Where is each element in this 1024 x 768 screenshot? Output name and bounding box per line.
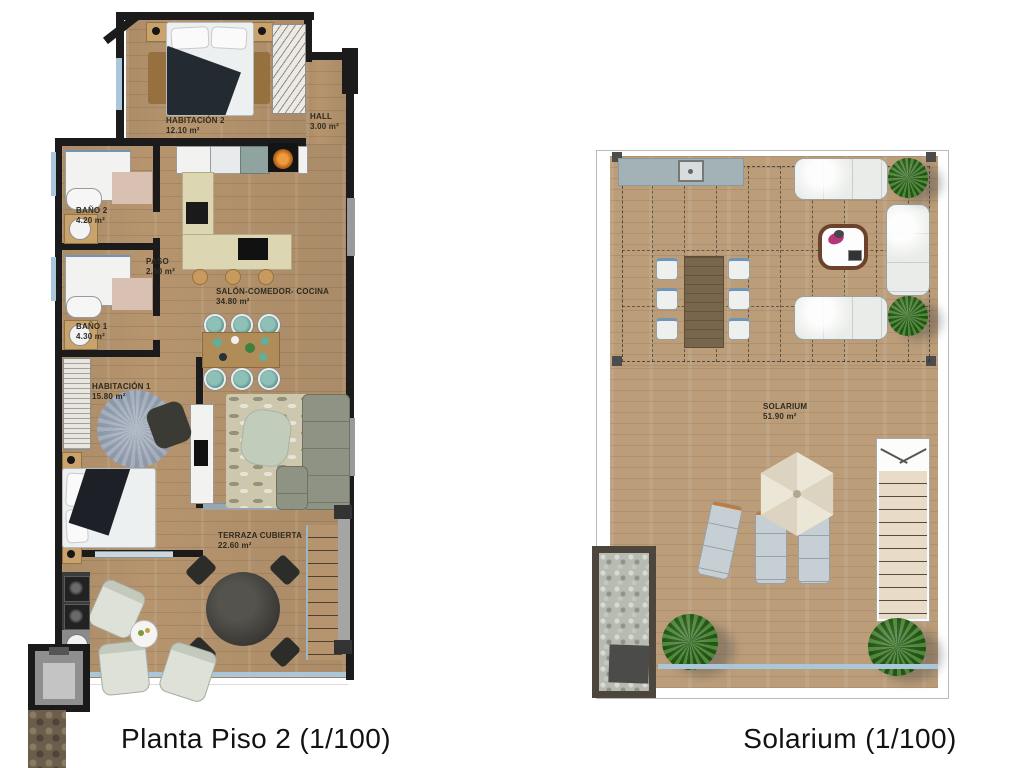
stair-cap: [334, 640, 352, 654]
plate: [259, 353, 267, 361]
lamp: [258, 27, 266, 35]
wall: [55, 243, 160, 250]
caption-solarium: Solarium (1/100): [700, 722, 1000, 756]
wardrobe: [63, 358, 91, 450]
room-area: 2.50 m²: [146, 267, 175, 277]
room-name: TERRAZA CUBIERTA: [218, 531, 302, 541]
outdoor-dining-table: [684, 256, 724, 348]
burner: [69, 609, 83, 623]
room-label-habitacion-2: HABITACIÓN 2 12.10 m²: [166, 116, 225, 136]
plate: [261, 337, 269, 345]
tv: [194, 440, 208, 466]
room-name: HALL: [310, 112, 339, 122]
stair-treads: [879, 471, 927, 619]
room-name: SALÓN-COMEDOR- COCINA: [216, 287, 329, 297]
room-name: HABITACIÓN 2: [166, 116, 225, 126]
plant: [888, 158, 928, 198]
lamp: [152, 27, 160, 35]
burner: [69, 581, 83, 595]
wall: [116, 12, 314, 20]
parasol-hub: [793, 490, 801, 498]
room-label-solarium: SOLARIUM 51.90 m²: [763, 402, 807, 422]
room-area: 4.20 m²: [76, 216, 107, 226]
room-area: 15.80 m²: [92, 392, 151, 402]
double-bed: [62, 468, 156, 548]
room-label-paso: PASO 2.50 m²: [146, 257, 175, 277]
kitchen-cabinet: [298, 146, 308, 174]
plate: [213, 338, 222, 347]
side-table: [130, 620, 158, 648]
plant: [888, 296, 928, 336]
dining-chair: [258, 368, 280, 390]
pillow: [210, 26, 247, 50]
wardrobe: [272, 24, 306, 114]
room-area: 3.00 m²: [310, 122, 339, 132]
wall: [55, 138, 62, 650]
kitchen-cabinet-glass: [240, 146, 270, 174]
dark-blanket: [166, 46, 241, 116]
room-label-bano-2: BAÑO 2 4.20 m²: [76, 206, 107, 226]
outdoor-chair: [656, 318, 678, 340]
bbq-grill: [64, 576, 90, 602]
pergola-beam: [622, 250, 928, 251]
coffee-table: [818, 224, 868, 270]
hatch-square: [608, 644, 649, 683]
solarium-railing: [658, 664, 938, 669]
chimney-cap: [49, 647, 69, 655]
food: [145, 628, 150, 633]
room-name: HABITACIÓN 1: [92, 382, 151, 392]
counter-sink: [678, 160, 704, 182]
room-area: 22.60 m²: [218, 541, 302, 551]
pergola-post: [926, 152, 936, 162]
stair-pilaster: [338, 512, 350, 646]
toilet: [66, 296, 102, 318]
pergola-beam: [780, 166, 781, 362]
terrace-armchair: [97, 640, 150, 697]
oven-glow: [273, 149, 293, 169]
plate: [219, 353, 227, 361]
chimney-inner: [43, 663, 75, 699]
dining-table: [202, 332, 280, 368]
room-label-bano-1: BAÑO 1 4.30 m²: [76, 322, 107, 342]
bar-stool: [225, 269, 241, 285]
outdoor-sofa: [886, 204, 930, 296]
window-band: [95, 551, 173, 558]
wall-node: [342, 48, 358, 94]
room-label-salon: SALÓN-COMEDOR- COCINA 34.80 m²: [216, 287, 329, 307]
pergola-beam: [652, 166, 653, 362]
stair-cap: [334, 505, 352, 519]
wall: [153, 146, 160, 212]
sofa-chaise: [276, 466, 308, 510]
sofa: [302, 394, 350, 510]
outdoor-chair: [728, 318, 750, 340]
dining-chair: [204, 368, 226, 390]
terrace-table: [206, 572, 280, 646]
kitchen-sink: [186, 202, 208, 224]
wall-pilaster: [347, 198, 355, 256]
bar-stool: [258, 269, 274, 285]
outdoor-chair: [728, 258, 750, 280]
outdoor-sofa: [794, 296, 888, 340]
room-label-hall: HALL 3.00 m²: [310, 112, 339, 132]
cooktop: [238, 238, 268, 260]
dining-chair: [231, 368, 253, 390]
room-name: BAÑO 2: [76, 206, 107, 216]
bowl: [245, 343, 255, 353]
lamp: [67, 456, 75, 464]
window: [116, 58, 122, 110]
room-name: BAÑO 1: [76, 322, 107, 332]
outdoor-chair: [728, 288, 750, 310]
room-area: 34.80 m²: [216, 297, 329, 307]
bath-mat: [112, 172, 152, 204]
pillow: [170, 26, 209, 50]
food: [138, 630, 144, 636]
window: [51, 257, 56, 301]
pergola-post: [612, 356, 622, 366]
room-area: 4.30 m²: [76, 332, 107, 342]
outdoor-chair: [656, 258, 678, 280]
window: [51, 152, 56, 196]
book: [848, 250, 862, 261]
outdoor-chair: [656, 288, 678, 310]
stone-path: [28, 710, 66, 768]
lamp: [67, 550, 75, 558]
bath-mat: [112, 278, 152, 310]
kitchen-cabinet: [210, 146, 242, 174]
room-area: 51.90 m²: [763, 412, 807, 422]
room-name: SOLARIUM: [763, 402, 807, 412]
room-area: 12.10 m²: [166, 126, 225, 136]
plate: [231, 336, 239, 344]
stair-chevron: [899, 448, 926, 464]
kitchen-island: [182, 234, 292, 270]
plant: [662, 614, 718, 670]
bbq-grill: [64, 604, 90, 630]
wall: [55, 350, 160, 357]
double-bed: [166, 22, 254, 116]
drain: [688, 169, 693, 174]
solarium-staircase: [876, 438, 930, 622]
stone-panel: [592, 546, 656, 698]
outdoor-sofa: [794, 158, 888, 200]
floor-plan-canvas: HABITACIÓN 2 12.10 m² HALL 3.00 m² BAÑO …: [0, 0, 1024, 768]
caption-planta-piso-2: Planta Piso 2 (1/100): [96, 722, 416, 756]
kitchen-cabinet: [176, 146, 212, 174]
bar-stool: [192, 269, 208, 285]
room-label-terraza: TERRAZA CUBIERTA 22.60 m²: [218, 531, 302, 551]
oven: [268, 143, 298, 172]
room-label-habitacion-1: HABITACIÓN 1 15.80 m²: [92, 382, 151, 402]
flowers-leaf: [834, 230, 844, 238]
room-name: PASO: [146, 257, 175, 267]
chimney-structure: [28, 644, 90, 712]
